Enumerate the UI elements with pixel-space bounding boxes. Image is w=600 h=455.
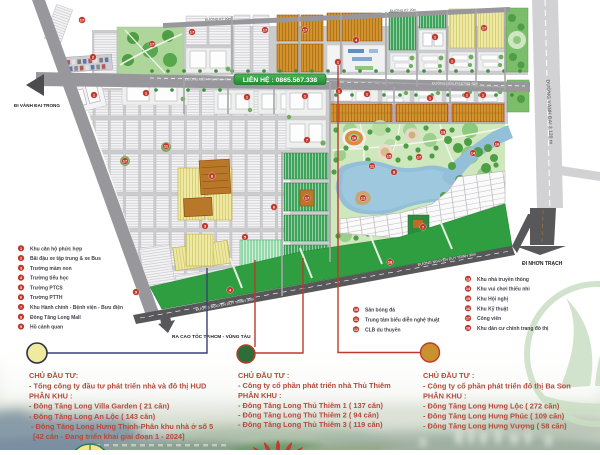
svg-text:17: 17 [150, 41, 155, 46]
svg-text:15: 15 [466, 297, 470, 301]
svg-text:8: 8 [20, 315, 22, 319]
svg-text:- Công ty cổ phần phát triển n: - Công ty cổ phần phát triển nhà Thủ Thi… [238, 381, 391, 390]
svg-text:17: 17 [123, 158, 128, 163]
svg-text:Khu Hội nghị: Khu Hội nghị [477, 296, 509, 302]
svg-text:10: 10 [352, 135, 357, 140]
svg-text:- Đông Tăng Long Villa Garden: - Đông Tăng Long Villa Garden ( 21 căn) [29, 402, 170, 411]
svg-text:13: 13 [466, 277, 470, 281]
svg-text:Khu Kỹ thuật: Khu Kỹ thuật [477, 306, 508, 312]
svg-text:Sân bóng đá: Sân bóng đá [365, 308, 395, 314]
svg-text:9: 9 [20, 325, 22, 329]
svg-text:17: 17 [466, 317, 470, 321]
svg-text:CLB du thuyền: CLB du thuyền [365, 327, 401, 333]
svg-text:PHÂN KHU :: PHÂN KHU : [29, 392, 73, 401]
svg-text:- Tổng công ty đầu tư phát tri: - Tổng công ty đầu tư phát triển nhà và … [29, 382, 207, 391]
svg-text:2: 2 [20, 257, 22, 261]
svg-text:- Đông Tăng Long Thủ Thiêm 2: - Đông Tăng Long Thủ Thiêm 2 ( 94 căn) [238, 411, 379, 420]
svg-text:Khu Hành chính - Bệnh viện - B: Khu Hành chính - Bệnh viện - Bưu điện [30, 305, 123, 311]
svg-text:- Đông Tăng Long Hưng Lộc ( 27: - Đông Tăng Long Hưng Lộc ( 272 căn) [423, 402, 560, 411]
svg-text:- Công ty cổ phần phát triển đ: - Công ty cổ phần phát triển đô thị Ba S… [423, 382, 571, 391]
svg-text:Trung tâm biểu diễn nghệ thuật: Trung tâm biểu diễn nghệ thuật [365, 317, 440, 324]
svg-text:12: 12 [354, 328, 358, 332]
svg-text:Khu dân cư chỉnh trang đô thị: Khu dân cư chỉnh trang đô thị [477, 326, 549, 332]
svg-text:10: 10 [354, 308, 358, 312]
svg-text:CHỦ ĐẦU TƯ :: CHỦ ĐẦU TƯ : [238, 370, 289, 380]
svg-text:ĐI NHƠN TRẠCH: ĐI NHƠN TRẠCH [522, 261, 563, 267]
svg-text:Trường PTCS: Trường PTCS [30, 285, 63, 291]
svg-text:17: 17 [305, 195, 310, 200]
svg-text:Công viên: Công viên [477, 316, 501, 322]
svg-text:1: 1 [20, 247, 22, 251]
svg-text:- Đông Tăng Long An Lộc ( 143: - Đông Tăng Long An Lộc ( 143 căn) [29, 412, 156, 421]
svg-text:ĐI VÀNH ĐAI TRONG: ĐI VÀNH ĐAI TRONG [14, 102, 60, 108]
svg-text:Đông Tăng Long Mall: Đông Tăng Long Mall [30, 315, 81, 321]
svg-text:17: 17 [303, 27, 308, 32]
svg-text:RA CAO TỐC TP.HCM - VŨNG TÀU: RA CAO TỐC TP.HCM - VŨNG TÀU [172, 333, 251, 340]
svg-text:- Đông Tăng Long Hưng Thịnh-Ph: - Đông Tăng Long Hưng Thịnh-Phân khu nhà… [31, 422, 213, 431]
svg-text:Khu vui chơi thiếu nhi: Khu vui chơi thiếu nhi [477, 286, 530, 293]
svg-text:17: 17 [417, 154, 422, 159]
svg-text:16: 16 [466, 307, 470, 311]
svg-text:PHÂN KHU :: PHÂN KHU : [238, 391, 282, 400]
svg-text:17: 17 [482, 25, 487, 30]
svg-text:CHỦ ĐẦU TƯ :: CHỦ ĐẦU TƯ : [423, 370, 474, 380]
svg-text:LIÊN HỆ : 0865.567.338: LIÊN HỆ : 0865.567.338 [243, 75, 318, 84]
svg-text:3: 3 [20, 266, 22, 270]
svg-text:- Đông Tăng Long Thủ Thiêm 3: - Đông Tăng Long Thủ Thiêm 3 ( 119 căn) [238, 420, 383, 429]
svg-text:7: 7 [20, 305, 22, 309]
svg-text:5: 5 [20, 286, 22, 290]
svg-text:Khu căn hộ phức hợp: Khu căn hộ phức hợp [30, 246, 82, 252]
svg-text:17: 17 [80, 17, 85, 22]
svg-text:- Đông Tăng Long Hưng Vượng (: - Đông Tăng Long Hưng Vượng ( 58 căn) [423, 422, 567, 431]
svg-text:CHỦ ĐẦU TƯ:: CHỦ ĐẦU TƯ: [29, 370, 78, 380]
svg-text:18: 18 [466, 327, 470, 331]
svg-text:17: 17 [263, 27, 268, 32]
svg-text:14: 14 [471, 150, 476, 155]
svg-text:6: 6 [20, 296, 22, 300]
svg-text:17: 17 [190, 29, 195, 34]
svg-text:ĐƯỜNG LIÊN PHƯỜNG 40m: ĐƯỜNG LIÊN PHƯỜNG 40m [432, 81, 478, 86]
svg-text:15: 15 [387, 153, 392, 158]
svg-text:11: 11 [354, 318, 358, 322]
svg-text:13: 13 [441, 129, 446, 134]
svg-text:- Đông Tăng Long Hưng Phúc ( 1: - Đông Tăng Long Hưng Phúc ( 109 căn) [423, 412, 565, 421]
svg-text:- Đông Tăng Long Thủ Thiêm 1: - Đông Tăng Long Thủ Thiêm 1 ( 137 căn) [238, 401, 383, 410]
svg-text:18: 18 [388, 259, 393, 264]
svg-text:Bãi đậu xe tập trung & xe Bus: Bãi đậu xe tập trung & xe Bus [30, 256, 101, 262]
svg-text:Trường tiểu học: Trường tiểu học [30, 275, 69, 282]
svg-text:[42 căn - Đang triển khai giai: [42 căn - Đang triển khai giai đoạn 1 - … [33, 432, 185, 441]
svg-text:12: 12 [361, 195, 366, 200]
svg-text:Trường mầm non: Trường mầm non [30, 266, 72, 272]
svg-text:PHÂN KHU :: PHÂN KHU : [423, 392, 467, 401]
svg-text:16: 16 [495, 141, 500, 146]
svg-text:Hồ cảnh quan: Hồ cảnh quan [30, 325, 63, 331]
svg-text:ĐƯỜNG LIÊN PHƯỜNG 40m: ĐƯỜNG LIÊN PHƯỜNG 40m [185, 77, 231, 82]
svg-text:Trường PTTH: Trường PTTH [30, 295, 63, 301]
svg-text:Khu nhà truyền thống: Khu nhà truyền thống [477, 276, 529, 283]
